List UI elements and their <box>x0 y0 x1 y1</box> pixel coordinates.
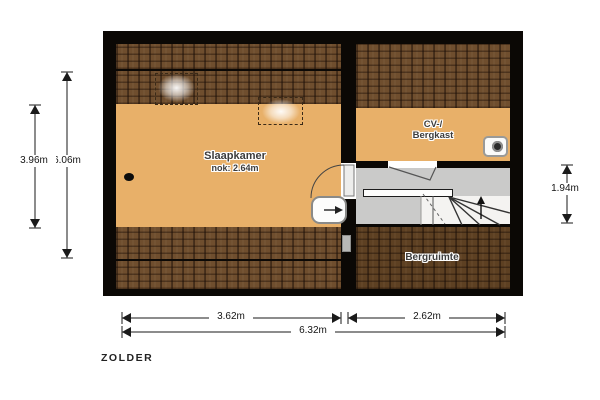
dim-label-bottom-right: 2.62m <box>405 311 449 323</box>
cv-closet-label: CV-/ Bergkast <box>393 120 473 142</box>
dim-arrow-down <box>30 219 40 228</box>
bedroom-label: Slaapkamer nok: 2.64m <box>175 150 295 173</box>
cv-closet-roof-slope <box>356 44 510 108</box>
bedroom-name: Slaapkamer <box>175 150 295 163</box>
bedroom-roof-slope-top <box>116 44 341 104</box>
storage-name: Bergruimte <box>382 252 482 264</box>
staircase-area <box>421 196 510 225</box>
dim-arrow-left <box>348 313 357 323</box>
cv-closet-name-line2: Bergkast <box>393 131 473 142</box>
stair-balustrade <box>363 189 453 197</box>
floorplan-canvas: Slaapkamer nok: 2.64m CV-/ Bergkast Berg… <box>0 0 600 400</box>
page-title: ZOLDER <box>101 352 153 364</box>
storage-label: Bergruimte <box>382 252 482 264</box>
dim-label-left-inner: 3.96m <box>12 155 56 167</box>
wall-inset-panel <box>342 235 351 252</box>
bedroom-knee-wall-line-bottom <box>116 259 341 261</box>
bedroom-door-opening <box>341 163 356 199</box>
dim-arrow-left <box>122 327 131 337</box>
dim-arrow-right <box>496 327 505 337</box>
dim-label-bottom-total: 6.32m <box>291 325 335 337</box>
skylight-highlight-2 <box>262 99 300 124</box>
skylight-highlight-1 <box>158 74 195 102</box>
bedroom-ridge-height: nok: 2.64m <box>175 163 295 173</box>
dim-arrow-left <box>122 313 131 323</box>
dim-arrow-down <box>562 214 572 223</box>
bedroom-knee-wall-line-top <box>116 69 341 71</box>
cv-boiler-icon <box>483 136 508 157</box>
dim-arrow-up <box>62 72 72 81</box>
cv-closet-door-opening <box>388 161 437 168</box>
dim-arrow-right <box>496 313 505 323</box>
dim-arrow-up <box>30 105 40 114</box>
bedroom-roof-slope-bottom <box>116 227 341 289</box>
dim-label-bottom-left: 3.62m <box>209 311 253 323</box>
dim-label-right: 1.94m <box>543 183 587 195</box>
dim-arrow-up <box>562 165 572 174</box>
dim-arrow-down <box>62 249 72 258</box>
dim-arrow-right <box>332 313 341 323</box>
boiler-drum-icon <box>492 141 503 152</box>
